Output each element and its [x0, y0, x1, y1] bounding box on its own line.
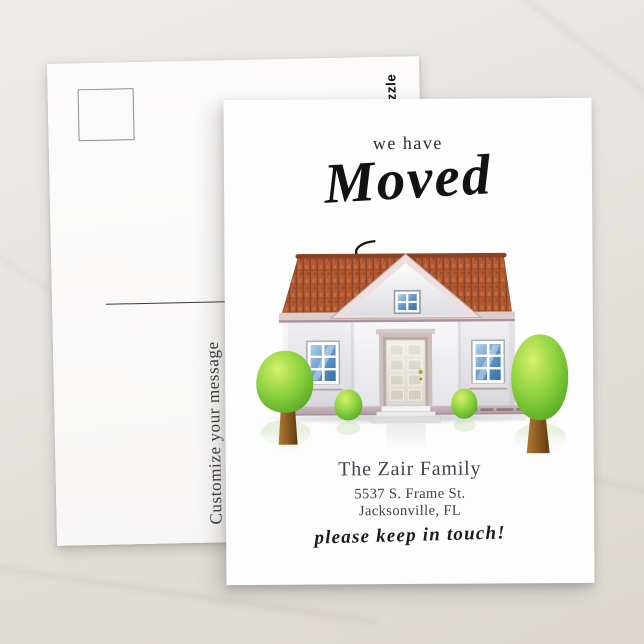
- customize-message-label: Customize your message: [203, 341, 227, 525]
- postcard-mockup-scene: Customize your message zazzle we have Mo…: [0, 0, 644, 644]
- window-right: [469, 339, 507, 389]
- house-illustration: [253, 247, 570, 461]
- front-door: [376, 329, 435, 406]
- stamp-box: [78, 88, 135, 141]
- bush-right: [451, 389, 477, 419]
- address-line-2: Jacksonville, FL: [226, 502, 594, 521]
- gable-window: [394, 290, 421, 314]
- tagline-script: please keep in touch!: [226, 520, 594, 552]
- postcard-front: we have Moved: [224, 98, 595, 585]
- family-name: The Zair Family: [226, 457, 594, 482]
